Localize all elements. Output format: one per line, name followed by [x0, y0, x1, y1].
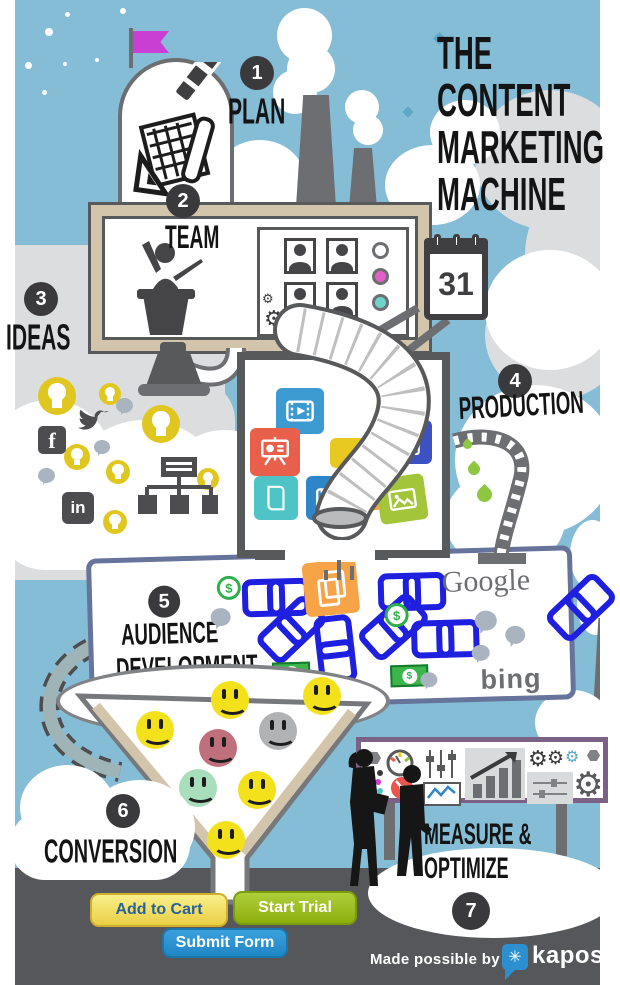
smiley-icon [199, 729, 237, 767]
kapost-logo-icon: ✳ [502, 944, 528, 970]
sky-diamond [402, 106, 413, 117]
step-4-label: PRODUCTION [458, 387, 585, 426]
step-2-badge: 2 [166, 184, 200, 218]
submit-form-label: Submit Form [176, 934, 275, 952]
step-7-number: 7 [465, 900, 476, 923]
step-6-badge: 6 [106, 794, 140, 828]
portrait-tile [284, 238, 316, 274]
linkedin-icon: in [62, 492, 94, 524]
chain-link-icon [411, 619, 468, 647]
snow-dot [25, 62, 32, 69]
lightbulb-icon [142, 405, 180, 443]
infographic-canvas: THE CONTENT MARKETING MACHINE 1 PLAN [0, 0, 620, 985]
gear-icon: ⚙ [573, 768, 603, 802]
kapost-wordmark: kapost [532, 942, 612, 970]
calendar-ring [453, 234, 460, 248]
dollar-coin-icon: $ [216, 576, 241, 601]
step-5-badge: 5 [148, 585, 181, 618]
drafting-tools-icon [126, 62, 230, 202]
step-7-label-line2: OPTIMIZE [424, 854, 509, 884]
speech-bubble-icon [210, 608, 230, 627]
speech-bubble-icon [38, 468, 55, 483]
gear-icon: ⚙ [528, 748, 548, 770]
lightbulb-icon [38, 377, 76, 415]
speech-bubble-icon [472, 645, 490, 661]
linkedin-letters: in [70, 498, 85, 518]
step-1-badge: 1 [240, 56, 274, 90]
add-to-cart-label: Add to Cart [115, 901, 202, 919]
calendar-day: 31 [438, 266, 474, 303]
hexagon-icon [587, 750, 600, 761]
smiley-icon [259, 712, 297, 750]
portrait-tile [326, 238, 358, 274]
calendar-ring [434, 234, 441, 248]
step-3-badge: 3 [24, 282, 58, 316]
speech-bubble-icon [505, 626, 525, 645]
title-line: MARKETING [437, 124, 604, 171]
lightbulb-icon [103, 510, 127, 534]
chain-link-icon [242, 578, 299, 606]
ladder-rail [440, 425, 550, 570]
step-5-number: 5 [158, 590, 170, 613]
credit-text: Made possible by [370, 951, 500, 968]
step-1-label: PLAN [228, 94, 285, 130]
gear-icon: ⚙ [565, 750, 579, 766]
snow-dot [120, 8, 126, 14]
snow-dot [95, 58, 99, 62]
speech-bubble-icon [420, 672, 437, 687]
step-6-number: 6 [117, 800, 128, 823]
smiley-icon [303, 677, 341, 715]
start-trial-button[interactable]: Start Trial [233, 891, 357, 925]
step-7-label-line1: MEASURE & [424, 820, 532, 850]
page-title: THE CONTENT MARKETING MACHINE [437, 30, 604, 218]
step-3-number: 3 [35, 288, 46, 311]
smiley-icon [238, 771, 276, 809]
speech-bubble-icon [94, 440, 110, 454]
lightbulb-icon [106, 460, 130, 484]
step-2-number: 2 [177, 190, 188, 213]
step-5-label-line1: AUDIENCE [121, 618, 219, 651]
smiley-icon [136, 711, 174, 749]
step-7-badge: 7 [452, 892, 490, 930]
step-1-number: 1 [251, 62, 262, 85]
start-trial-label: Start Trial [258, 899, 332, 917]
sitemap-icon [136, 455, 218, 517]
motion-dashes [318, 558, 364, 584]
title-line: MACHINE [437, 171, 604, 218]
snow-dot [63, 62, 67, 66]
snow-dot [45, 28, 53, 36]
smoke [353, 115, 383, 145]
step-3-label: IDEAS [6, 320, 70, 356]
step-6-label: CONVERSION [44, 834, 177, 868]
billboard-leg [556, 798, 567, 856]
facebook-icon: f [38, 426, 66, 454]
twitter-bird-icon [76, 408, 110, 434]
speech-bubble-icon [475, 610, 498, 631]
kapost-star: ✳ [508, 947, 521, 967]
bing-logo: bing [480, 663, 542, 696]
step-2-label: TEAM [165, 221, 219, 254]
title-line: THE [437, 30, 604, 77]
smiley-icon [211, 681, 249, 719]
smiley-icon [207, 821, 245, 859]
gear-icon: ⚙ [547, 749, 564, 768]
sliders-icon [527, 772, 573, 804]
add-to-cart-button[interactable]: Add to Cart [90, 893, 228, 927]
kapost-logo-tail [505, 968, 517, 980]
status-dot-magenta [372, 268, 389, 285]
snow-dot [65, 12, 70, 17]
status-dot-white [372, 242, 389, 259]
lightbulb-icon [64, 444, 90, 470]
submit-form-button[interactable]: Submit Form [162, 928, 288, 958]
vacuum-bell-base [138, 384, 210, 396]
corrugated-tube [240, 300, 460, 540]
calendar-ring [472, 234, 479, 248]
snow-dot [42, 90, 47, 95]
title-line: CONTENT [437, 77, 604, 124]
facebook-letter: f [48, 428, 55, 454]
chain-link-icon [325, 613, 357, 666]
smokestack [349, 148, 377, 208]
bar-chart-icon [465, 748, 525, 800]
